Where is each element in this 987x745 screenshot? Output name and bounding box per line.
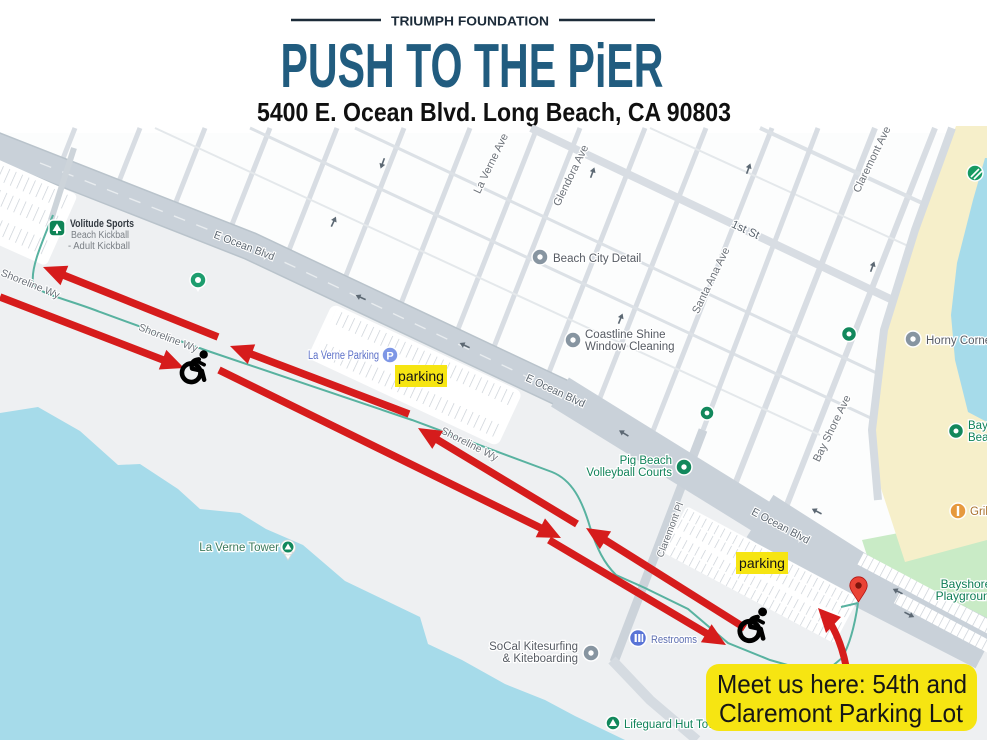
svg-text:- Adult Kickball: - Adult Kickball (68, 241, 130, 252)
svg-text:TRIUMPH FOUNDATION: TRIUMPH FOUNDATION (391, 14, 549, 29)
svg-text:parking: parking (739, 555, 785, 571)
svg-text:Claremont Parking Lot: Claremont Parking Lot (719, 698, 964, 728)
svg-text:Volleyball Courts: Volleyball Courts (586, 467, 672, 479)
svg-text:SoCal Kitesurfing: SoCal Kitesurfing (489, 641, 578, 653)
svg-text:La Verne Parking: La Verne Parking (308, 350, 379, 362)
svg-text:P: P (386, 351, 393, 363)
svg-text:Restrooms: Restrooms (651, 634, 697, 646)
svg-text:5400 E. Ocean Blvd. Long Beach: 5400 E. Ocean Blvd. Long Beach, CA 90803 (257, 97, 731, 127)
svg-text:Beach Kickball: Beach Kickball (71, 230, 129, 241)
svg-text:& Kiteboarding: & Kiteboarding (503, 653, 578, 665)
svg-text:Playground: Playground (936, 589, 987, 603)
svg-text:La Verne Tower: La Verne Tower (199, 542, 279, 554)
svg-text:Beach City Detail: Beach City Detail (553, 253, 641, 265)
svg-text:parking: parking (398, 368, 444, 384)
svg-text:Pig Beach: Pig Beach (620, 455, 672, 467)
svg-text:Window Cleaning: Window Cleaning (585, 341, 675, 353)
svg-text:Bayshore: Bayshore (968, 420, 987, 432)
svg-text:PUSH TO THE PiER: PUSH TO THE PiER (281, 32, 664, 101)
svg-text:Volitude Sports: Volitude Sports (70, 218, 134, 230)
svg-text:Horny Corner: Horny Corner (926, 335, 987, 347)
svg-text:Coastline Shine: Coastline Shine (585, 329, 666, 341)
svg-text:Grill: Grill (970, 506, 987, 518)
svg-text:Beach: Beach (968, 432, 987, 444)
svg-text:Meet us here: 54th and: Meet us here: 54th and (717, 669, 967, 699)
